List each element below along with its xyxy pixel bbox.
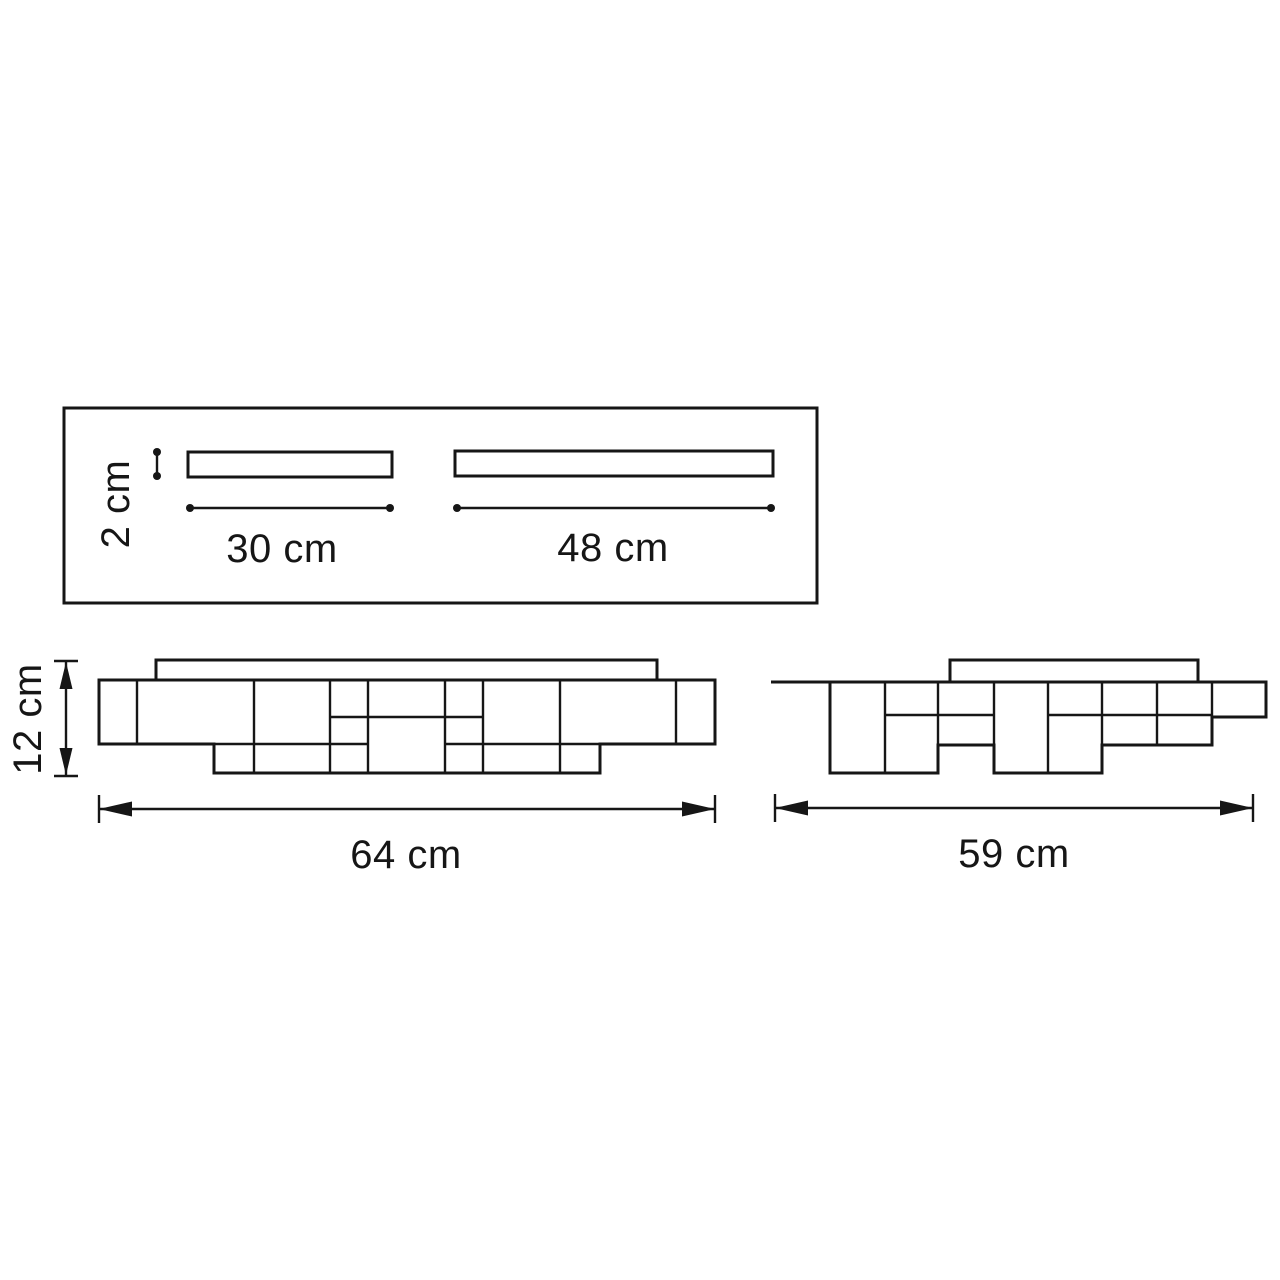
front-view-ceiling-plate [156, 660, 657, 680]
top-view-plate-outline [64, 408, 817, 603]
front-view: 12 cm 64 cm [6, 660, 715, 877]
arrow-up-icon [60, 662, 73, 689]
dim-dot [453, 504, 461, 512]
dim-label-64cm: 64 cm [350, 833, 461, 877]
arrow-right-icon [682, 802, 715, 817]
lamp-bar-30cm [188, 452, 392, 477]
dim-label-48cm: 48 cm [557, 526, 668, 570]
dim-dot [153, 472, 161, 480]
dim-30cm: 30 cm [186, 504, 394, 571]
arrow-down-icon [60, 748, 73, 775]
dim-64cm: 64 cm [99, 795, 715, 877]
lamp-bar-48cm [455, 451, 773, 476]
top-view: 2 cm 30 cm 48 cm [64, 408, 817, 603]
dim-dot [153, 448, 161, 456]
dim-label-59cm: 59 cm [958, 832, 1069, 876]
dim-dot [386, 504, 394, 512]
front-view-panel-dividers-horizontal [214, 717, 600, 744]
technical-drawing-canvas: 2 cm 30 cm 48 cm [0, 0, 1280, 1280]
dim-dot [186, 504, 194, 512]
dim-label-2cm: 2 cm [94, 460, 138, 549]
dim-dot [767, 504, 775, 512]
dim-59cm: 59 cm [775, 794, 1253, 876]
front-view-body-outline [99, 680, 715, 773]
arrow-left-icon [99, 802, 132, 817]
dim-2cm: 2 cm [94, 448, 161, 548]
front-view-panel-dividers-vertical [137, 680, 676, 773]
drawing-svg: 2 cm 30 cm 48 cm [0, 0, 1280, 1280]
side-view-ceiling-plate [950, 660, 1198, 682]
dim-label-30cm: 30 cm [226, 527, 337, 571]
arrow-left-icon [775, 801, 808, 816]
dim-12cm: 12 cm [6, 661, 78, 776]
side-view-panel-dividers-vertical [885, 682, 1212, 773]
side-view: 59 cm [771, 660, 1266, 876]
arrow-right-icon [1220, 801, 1253, 816]
dim-label-12cm: 12 cm [6, 663, 50, 774]
dim-48cm: 48 cm [453, 504, 775, 570]
